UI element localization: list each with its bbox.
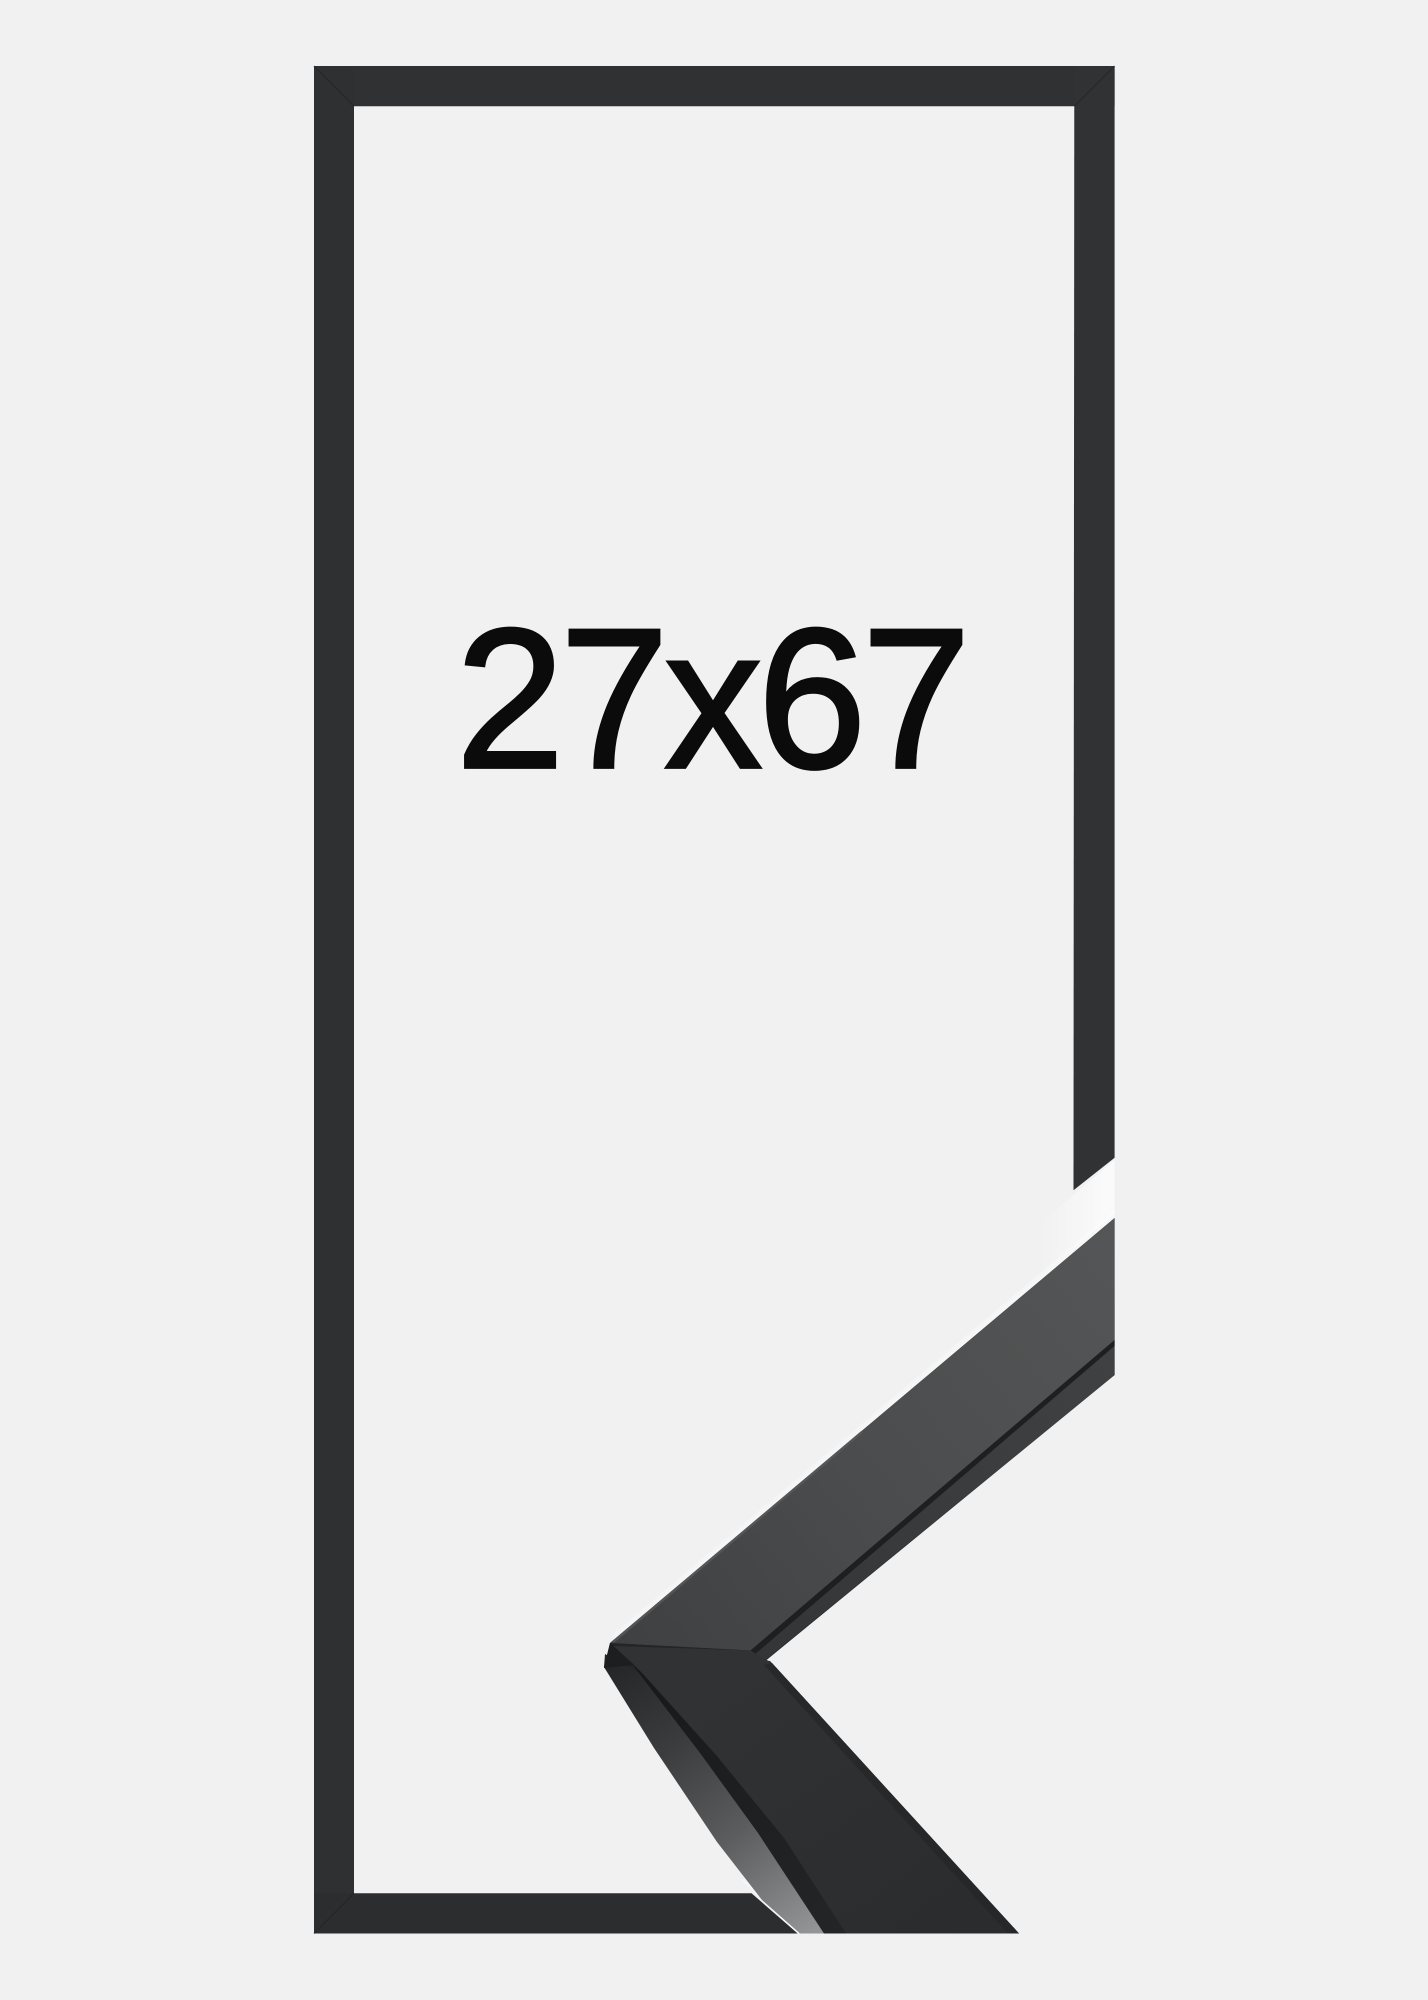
svg-text:27x67: 27x67: [456, 587, 967, 810]
